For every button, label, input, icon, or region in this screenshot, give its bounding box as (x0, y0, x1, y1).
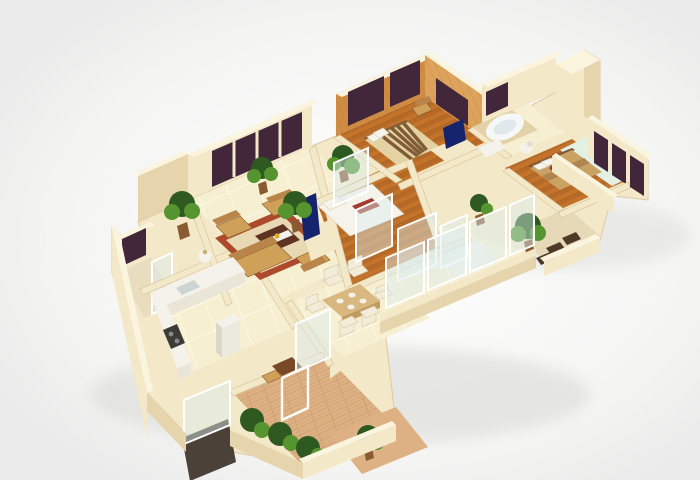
sliding-door-4 (510, 195, 534, 255)
plant-foliage (278, 203, 294, 219)
floor-plan-3d-render (0, 0, 700, 480)
plate (348, 293, 355, 298)
stove-burner (169, 332, 174, 337)
plate (347, 305, 354, 310)
plant-foliage (264, 167, 278, 181)
plant-foliage (254, 422, 270, 438)
plant-foliage (164, 204, 180, 220)
render-canvas: { "scene": { "type": "3d-floor-plan-rend… (0, 0, 700, 480)
plant-foliage (247, 169, 261, 183)
refrigerator-side (216, 322, 222, 358)
toilet-tank (527, 141, 533, 147)
plant-foliage (296, 202, 312, 218)
plate (336, 299, 343, 304)
table-lamp (203, 250, 207, 254)
stove-burner (175, 339, 180, 344)
plant-foliage (184, 203, 200, 219)
table-bowl (274, 233, 279, 238)
plate (359, 299, 366, 304)
